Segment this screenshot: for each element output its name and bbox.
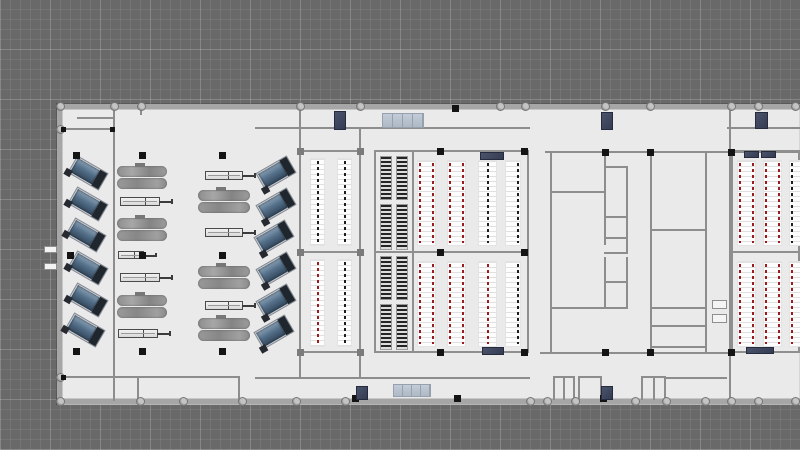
storage-rack <box>478 160 497 246</box>
interior-wall <box>550 191 606 193</box>
bench-tail-tip <box>254 173 256 177</box>
round-column <box>727 102 736 111</box>
round-column <box>137 102 146 111</box>
interior-wall <box>57 128 114 130</box>
dense-shelving-unit <box>380 304 392 350</box>
workbench-machine <box>205 228 243 237</box>
rack-marking-line <box>462 264 464 344</box>
skylight-panel-group <box>393 384 431 397</box>
bench-line <box>121 333 155 334</box>
bench-line <box>208 305 240 306</box>
interior-wall <box>359 352 361 378</box>
storage-rack <box>737 160 756 246</box>
structural-column <box>139 152 146 159</box>
round-column <box>727 397 736 406</box>
structural-column <box>521 249 528 256</box>
skylight-panel-group <box>382 113 424 128</box>
interior-wall <box>626 166 628 254</box>
interior-wall <box>650 229 707 231</box>
equipment-cabinet <box>334 111 346 130</box>
round-column <box>754 397 763 406</box>
interior-wall <box>550 307 628 309</box>
structural-column <box>437 349 444 356</box>
skylight-cell <box>403 385 412 396</box>
lathe-bed-bottom <box>198 202 250 213</box>
round-column <box>496 102 505 111</box>
rack-marking-line <box>449 163 451 243</box>
bench-tail-tip <box>254 303 256 307</box>
rack-marking-line <box>462 163 464 243</box>
interior-wall <box>540 352 730 354</box>
rack-marking-line <box>487 264 489 344</box>
lathe-machine <box>198 266 250 289</box>
lathe-machine <box>117 166 167 189</box>
equipment-cabinet <box>755 112 768 129</box>
door-leaf <box>712 300 727 309</box>
workbench-machine <box>118 329 158 338</box>
lathe-bed-top <box>198 190 250 201</box>
equipment-cabinet <box>761 151 776 158</box>
exterior-wall <box>57 399 800 404</box>
lathe-bed-top <box>198 266 250 277</box>
lathe-bed-bottom <box>117 230 167 241</box>
bench-tail-tip <box>155 253 157 257</box>
rack-marking-line <box>317 262 319 344</box>
bench-line <box>123 201 157 202</box>
interior-wall <box>255 377 530 379</box>
interior-wall <box>650 152 652 352</box>
rack-marking-line <box>765 264 767 344</box>
equipment-cabinet <box>601 386 613 400</box>
interior-wall <box>665 377 727 379</box>
round-column <box>179 397 188 406</box>
round-column <box>754 102 763 111</box>
interior-wall <box>604 252 628 254</box>
rack-marking-line <box>739 163 741 243</box>
door-leaf <box>44 246 57 253</box>
rack-marking-line <box>432 264 434 344</box>
round-column <box>292 397 301 406</box>
rack-marking-line <box>419 264 421 344</box>
lathe-motor <box>135 215 145 219</box>
structural-column <box>521 148 528 155</box>
interior-wall <box>641 376 643 400</box>
structural-column <box>437 148 444 155</box>
round-column <box>136 397 145 406</box>
skylight-cell <box>383 114 393 127</box>
interior-wall <box>553 376 555 400</box>
rack-marking-line <box>791 163 793 243</box>
equipment-cabinet <box>744 151 759 158</box>
storage-rack <box>763 261 782 347</box>
dense-shelving-unit <box>380 256 392 300</box>
skylight-cell <box>394 385 403 396</box>
interior-wall <box>705 152 707 352</box>
rack-marking-line <box>791 264 793 344</box>
round-column <box>110 102 119 111</box>
storage-rack <box>447 261 466 347</box>
structural-column <box>73 348 80 355</box>
round-column <box>701 397 710 406</box>
interior-wall <box>604 166 628 168</box>
structural-column <box>647 149 654 156</box>
structural-column <box>139 348 146 355</box>
interior-wall <box>650 307 707 309</box>
structural-column <box>73 152 80 159</box>
lathe-bed-bottom <box>198 330 250 341</box>
equipment-cabinet <box>482 347 504 355</box>
structural-column <box>297 349 304 356</box>
round-column <box>631 397 640 406</box>
interior-wall <box>604 216 628 218</box>
bench-line <box>123 277 157 278</box>
exterior-wall <box>57 104 62 404</box>
structural-column <box>139 252 146 259</box>
storage-rack <box>505 160 521 246</box>
workbench-machine <box>205 171 243 180</box>
rack-marking-line <box>752 163 754 243</box>
round-column <box>238 397 247 406</box>
round-column <box>56 397 65 406</box>
rack-marking-line <box>432 163 434 243</box>
storage-rack <box>417 261 436 347</box>
interior-wall <box>57 376 239 378</box>
rack-marking-line <box>778 163 780 243</box>
rack-marking-line <box>317 161 319 243</box>
skylight-cell <box>413 114 423 127</box>
dense-shelving-unit <box>396 304 408 350</box>
equipment-cabinet <box>356 386 368 400</box>
lathe-bed-top <box>117 166 167 177</box>
lathe-bed-top <box>198 318 250 329</box>
round-column <box>341 397 350 406</box>
round-column <box>296 102 305 111</box>
interior-wall <box>113 107 115 401</box>
interior-wall <box>578 376 580 400</box>
interior-wall <box>650 325 707 327</box>
lathe-bed-top <box>117 295 167 306</box>
storage-rack <box>478 261 497 347</box>
round-column <box>543 397 552 406</box>
round-column <box>356 102 365 111</box>
structural-column <box>219 152 226 159</box>
floor-plan-viewport[interactable] <box>0 0 800 450</box>
storage-rack <box>310 158 325 246</box>
structural-column <box>454 395 461 402</box>
door-leaf <box>44 263 57 270</box>
round-column <box>601 102 610 111</box>
storage-rack <box>737 261 756 347</box>
round-column <box>791 102 800 111</box>
structural-column <box>647 349 654 356</box>
rack-marking-line <box>449 264 451 344</box>
rack-marking-line <box>487 163 489 243</box>
lathe-bed-bottom <box>198 278 250 289</box>
equipment-cabinet <box>480 152 504 160</box>
structural-column <box>67 252 74 259</box>
rack-marking-line <box>517 264 519 344</box>
structural-column <box>297 249 304 256</box>
dense-shelving-unit <box>396 256 408 300</box>
interior-wall <box>299 352 301 378</box>
floor-plan-canvas[interactable] <box>0 0 800 450</box>
interior-wall <box>550 152 552 352</box>
structural-column <box>357 148 364 155</box>
lathe-motor <box>216 187 226 191</box>
equipment-cabinet <box>746 347 774 354</box>
structural-column <box>602 349 609 356</box>
storage-rack <box>763 160 782 246</box>
workbench-machine <box>120 197 160 206</box>
storage-rack <box>789 160 800 246</box>
rack-marking-line <box>778 264 780 344</box>
skylight-cell <box>421 385 430 396</box>
dense-shelving-unit <box>380 156 392 200</box>
equipment-cabinet <box>601 112 613 130</box>
structural-column <box>110 127 115 132</box>
rack-marking-line <box>752 264 754 344</box>
round-column <box>521 102 530 111</box>
structural-column <box>357 349 364 356</box>
rack-marking-line <box>419 163 421 243</box>
workbench-machine <box>205 301 243 310</box>
skylight-cell <box>403 114 413 127</box>
interior-wall <box>299 106 301 150</box>
storage-rack <box>337 259 352 347</box>
structural-column <box>437 249 444 256</box>
interior-wall <box>578 376 602 378</box>
bench-tail-tip <box>171 199 173 203</box>
dense-shelving-unit <box>396 204 408 250</box>
lathe-machine <box>117 295 167 318</box>
lathe-motor <box>216 315 226 319</box>
dense-shelving-unit <box>396 156 408 200</box>
storage-rack <box>789 261 800 347</box>
round-column <box>571 397 580 406</box>
lathe-motor <box>135 292 145 296</box>
structural-column <box>521 349 528 356</box>
lathe-machine <box>117 218 167 241</box>
bench-tail-tip <box>169 331 171 335</box>
round-column <box>646 102 655 111</box>
interior-wall <box>563 376 565 400</box>
round-column <box>662 397 671 406</box>
stair-rail <box>77 117 114 119</box>
structural-column <box>728 149 735 156</box>
round-column <box>791 397 800 406</box>
lathe-bed-bottom <box>117 307 167 318</box>
storage-rack <box>505 261 521 347</box>
lathe-motor <box>216 263 226 267</box>
interior-wall <box>650 346 707 348</box>
structural-column <box>728 349 735 356</box>
workbench-machine <box>120 273 160 282</box>
bench-tail-tip <box>171 275 173 279</box>
structural-column <box>602 149 609 156</box>
round-column <box>56 102 65 111</box>
bench-tail-tip <box>254 230 256 234</box>
storage-rack <box>447 160 466 246</box>
structural-column <box>61 375 66 380</box>
structural-column <box>219 252 226 259</box>
rack-marking-line <box>517 163 519 243</box>
dense-shelving-unit <box>380 204 392 250</box>
lathe-bed-top <box>117 218 167 229</box>
interior-wall <box>604 281 628 283</box>
exterior-wall <box>57 104 800 109</box>
skylight-cell <box>412 385 421 396</box>
round-column <box>526 397 535 406</box>
structural-column <box>452 105 459 112</box>
storage-rack <box>337 158 352 246</box>
rack-marking-line <box>344 161 346 243</box>
door-leaf <box>712 314 727 323</box>
structural-column <box>61 127 66 132</box>
storage-rack <box>310 259 325 347</box>
structural-column <box>297 148 304 155</box>
rack-marking-line <box>765 163 767 243</box>
storage-rack <box>417 160 436 246</box>
structural-column <box>219 348 226 355</box>
interior-wall <box>604 237 628 239</box>
lathe-machine <box>198 318 250 341</box>
rack-marking-line <box>739 264 741 344</box>
bench-line <box>208 175 240 176</box>
lathe-motor <box>135 163 145 167</box>
interior-wall <box>653 376 655 400</box>
lathe-bed-bottom <box>117 178 167 189</box>
rack-marking-line <box>344 262 346 344</box>
structural-column <box>357 249 364 256</box>
lathe-machine <box>198 190 250 213</box>
bench-line <box>208 232 240 233</box>
skylight-cell <box>393 114 403 127</box>
